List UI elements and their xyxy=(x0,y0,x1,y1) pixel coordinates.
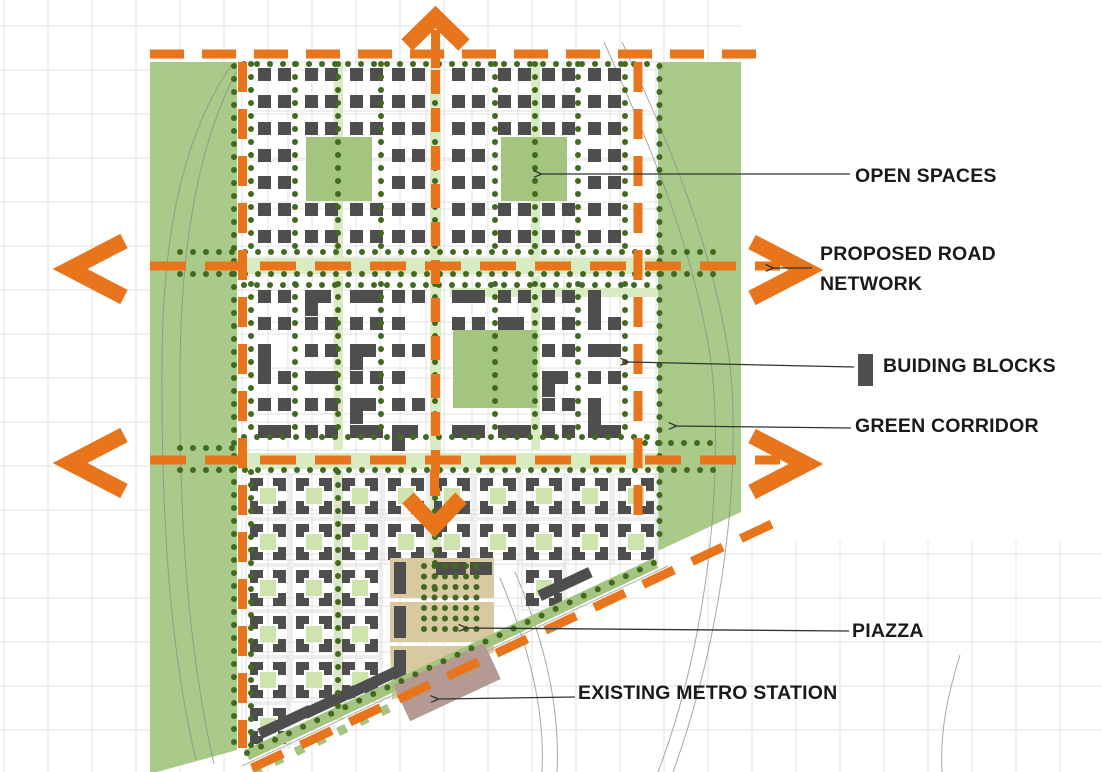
urban-plan-canvas: OPEN SPACES PROPOSED ROAD NETWORK BUIDIN… xyxy=(0,0,1102,772)
site-plan xyxy=(0,0,1102,772)
building-blocks-swatch-icon xyxy=(858,354,873,386)
up-arrow-stub xyxy=(431,30,440,68)
label-open-spaces: OPEN SPACES xyxy=(855,161,997,191)
label-existing-metro-station: EXISTING METRO STATION xyxy=(578,678,837,708)
label-piazza: PIAZZA xyxy=(852,616,924,646)
label-green-corridor: GREEN CORRIDOR xyxy=(855,411,1039,441)
label-building-blocks: BUIDING BLOCKS xyxy=(883,351,1056,381)
down-arrow-stub xyxy=(430,470,439,496)
label-proposed-road-network: PROPOSED ROAD NETWORK xyxy=(820,239,1030,299)
